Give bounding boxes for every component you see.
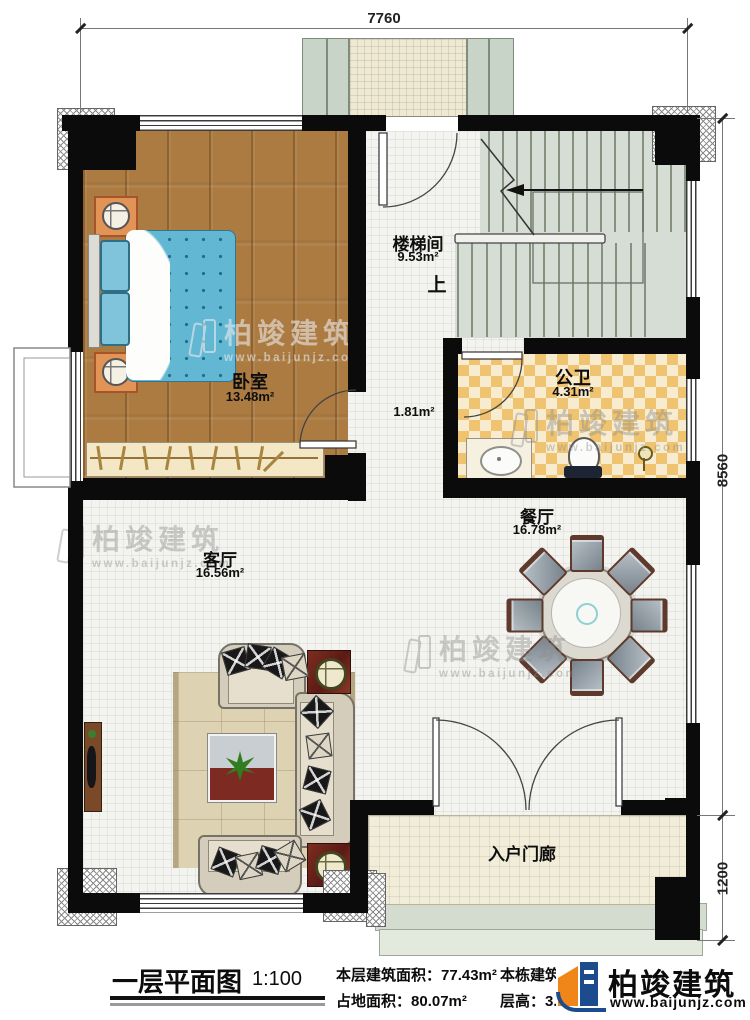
stair-tread	[601, 243, 603, 337]
wall-segment	[325, 455, 366, 500]
stair-tread	[587, 243, 589, 337]
stair-tread	[600, 131, 602, 232]
wall-segment	[68, 478, 366, 500]
dim-ext	[697, 118, 735, 119]
dining-chair	[570, 535, 604, 572]
window	[686, 181, 700, 297]
plan-title: 一层平面图	[112, 962, 242, 999]
stair-tread	[530, 131, 532, 232]
title-rule-thick	[110, 996, 325, 1000]
dim-line-top	[80, 28, 688, 29]
wall-segment	[68, 481, 83, 913]
wall-segment	[302, 115, 386, 131]
watermark-site: www.baijunjz.com	[439, 668, 578, 680]
stair-tread	[644, 243, 646, 337]
stair-tread	[471, 243, 473, 337]
floor-drain-stem	[643, 458, 645, 471]
lamp-icon	[102, 202, 130, 230]
hall-area: 1.81m²	[393, 404, 434, 419]
watermark-name: 柏竣建筑	[224, 312, 363, 352]
brand-logo-icon	[556, 962, 606, 1010]
toilet-tank	[564, 466, 602, 478]
dim-ext	[80, 18, 81, 113]
window	[686, 565, 700, 723]
stair-tread	[630, 243, 632, 337]
room-area-bedroom: 13.48m²	[226, 389, 274, 404]
wall-segment	[686, 723, 700, 810]
stair-tread	[502, 131, 504, 232]
stair-tread	[586, 131, 588, 232]
stair-tread	[558, 131, 560, 232]
dim-ext	[697, 815, 735, 816]
rear-canopy-panel	[489, 38, 514, 117]
room-area-stairwell: 9.53m²	[397, 249, 438, 264]
plan-scale: 1:100	[252, 968, 302, 991]
title-block: 一层平面图 1:100 本层建筑面积：77.43m² 占地面积：80.07m² …	[0, 956, 750, 1020]
stair-tread	[628, 131, 630, 232]
lazy-susan-icon	[576, 603, 598, 625]
stairwell-floor	[455, 243, 686, 338]
sink-drain	[497, 457, 501, 461]
wall-segment	[443, 338, 462, 354]
stair-tread	[642, 131, 644, 232]
window	[140, 115, 302, 131]
footprint-label: 占地面积：	[336, 993, 411, 1010]
wall-segment	[655, 877, 700, 940]
watermark-logo-icon	[190, 319, 216, 357]
height-label: 层高：	[500, 993, 545, 1010]
stair-tread	[529, 243, 531, 337]
rear-canopy-panel	[302, 38, 327, 117]
stair-tread	[515, 243, 517, 337]
column-hatch	[366, 873, 386, 927]
bed-sheet-fold	[126, 230, 170, 380]
stair-tread	[544, 131, 546, 232]
watermark: 柏竣建筑www.baijunjz.com	[190, 312, 363, 364]
dim-ext	[687, 18, 688, 113]
wall-segment	[524, 338, 686, 354]
dining-chair	[631, 599, 668, 633]
watermark-logo-icon	[405, 635, 431, 673]
watermark: 柏竣建筑www.baijunjz.com	[512, 402, 685, 454]
rear-canopy-deck	[349, 38, 467, 117]
pillow	[281, 653, 309, 681]
floor-area-label: 本层建筑面积：	[336, 967, 441, 984]
stair-tread	[572, 131, 574, 232]
footprint-line: 占地面积：80.07m²	[336, 990, 467, 1011]
bay-window-outline	[14, 348, 70, 487]
stair-tread	[500, 243, 502, 337]
stair-tread	[486, 243, 488, 337]
stair-tread	[516, 131, 518, 232]
watermark-name: 柏竣建筑	[439, 628, 578, 668]
watermark: 柏竣建筑www.baijunjz.com	[405, 628, 578, 680]
rear-canopy-panel	[467, 38, 489, 117]
window	[140, 893, 303, 913]
stair-tread	[488, 131, 490, 232]
stair-tread	[572, 243, 574, 337]
window	[66, 352, 83, 481]
window	[686, 379, 700, 461]
footprint-value: 80.07m²	[411, 993, 467, 1010]
watermark-name: 柏竣建筑	[546, 402, 685, 442]
room-area-living: 16.56m²	[196, 565, 244, 580]
stair-tread	[457, 243, 459, 337]
dim-top-width: 7760	[367, 10, 400, 27]
wall-segment	[686, 115, 700, 181]
bed-headboard	[88, 234, 100, 348]
room-label-porch: 入户门廊	[488, 840, 556, 865]
wall-segment	[68, 115, 83, 352]
title-rule-thin	[110, 1003, 325, 1006]
bed-pillow	[100, 292, 130, 346]
dim-right-porch: 1200	[715, 859, 732, 899]
wall-segment	[686, 461, 700, 565]
rear-canopy-panel	[327, 38, 349, 117]
stair-tread	[614, 131, 616, 232]
dim-right-height: 8560	[715, 451, 732, 491]
stair-tread	[543, 243, 545, 337]
wardrobe-rod	[90, 457, 318, 459]
wall-segment	[686, 297, 700, 379]
wall-segment	[350, 800, 368, 912]
watermark-site: www.baijunjz.com	[546, 442, 685, 454]
dim-ext	[697, 940, 735, 941]
floor-plan: 柏竣建筑www.baijunjz.com 柏竣建筑www.baijunjz.co…	[0, 0, 750, 1020]
plant-small-icon	[88, 730, 96, 738]
wall-segment	[368, 800, 434, 815]
stair-up-label: 上	[427, 270, 446, 297]
wall-segment	[443, 478, 700, 498]
tv-icon	[87, 746, 96, 788]
table-lamp-icon	[315, 658, 347, 690]
brand-logo: 柏竣建筑 www.baijunjz.com	[556, 960, 748, 1018]
bed-pillow	[100, 240, 130, 292]
wall-segment	[621, 800, 700, 815]
wall-segment	[348, 131, 366, 392]
pillow	[305, 732, 332, 759]
room-area-dining: 16.78m²	[513, 522, 561, 537]
brand-website: www.baijunjz.com	[610, 994, 747, 1010]
wall-segment	[443, 354, 458, 480]
floor-area-value: 77.43m²	[441, 967, 497, 984]
floor-area-line: 本层建筑面积：77.43m²	[336, 964, 497, 985]
wall-segment	[68, 893, 142, 913]
room-area-bathroom: 4.31m²	[552, 384, 593, 399]
watermark-site: www.baijunjz.com	[224, 352, 363, 364]
stair-tread	[615, 243, 617, 337]
watermark-logo-icon	[512, 409, 538, 447]
bay-window-inner	[24, 358, 70, 477]
stair-tread	[558, 243, 560, 337]
